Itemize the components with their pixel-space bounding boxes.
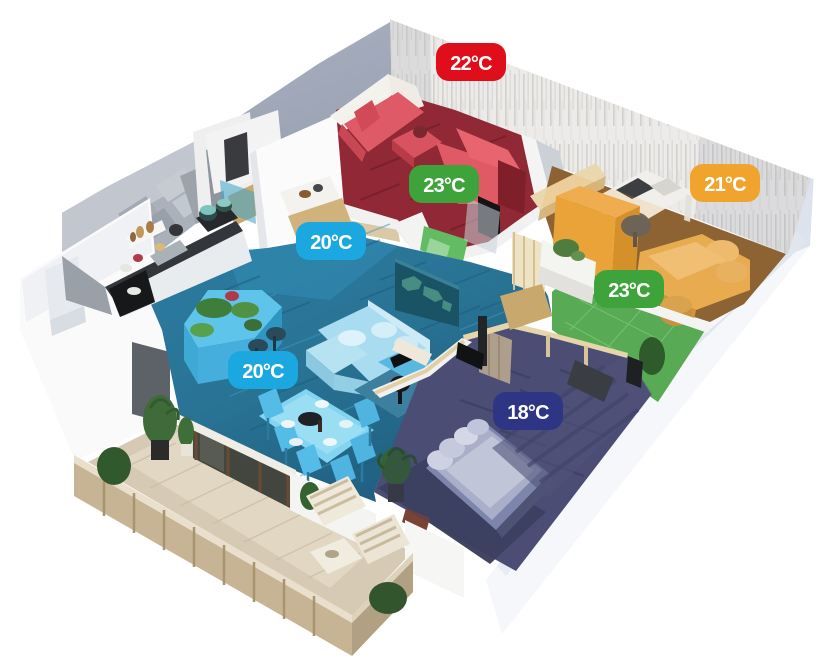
svg-text:23°C: 23°C xyxy=(423,175,465,197)
svg-text:18°C: 18°C xyxy=(507,402,549,424)
svg-text:20°C: 20°C xyxy=(242,361,284,383)
svg-text:22°C: 22°C xyxy=(450,53,492,75)
svg-text:20°C: 20°C xyxy=(310,232,352,254)
svg-text:23°C: 23°C xyxy=(608,280,650,302)
svg-text:21°C: 21°C xyxy=(704,174,746,196)
